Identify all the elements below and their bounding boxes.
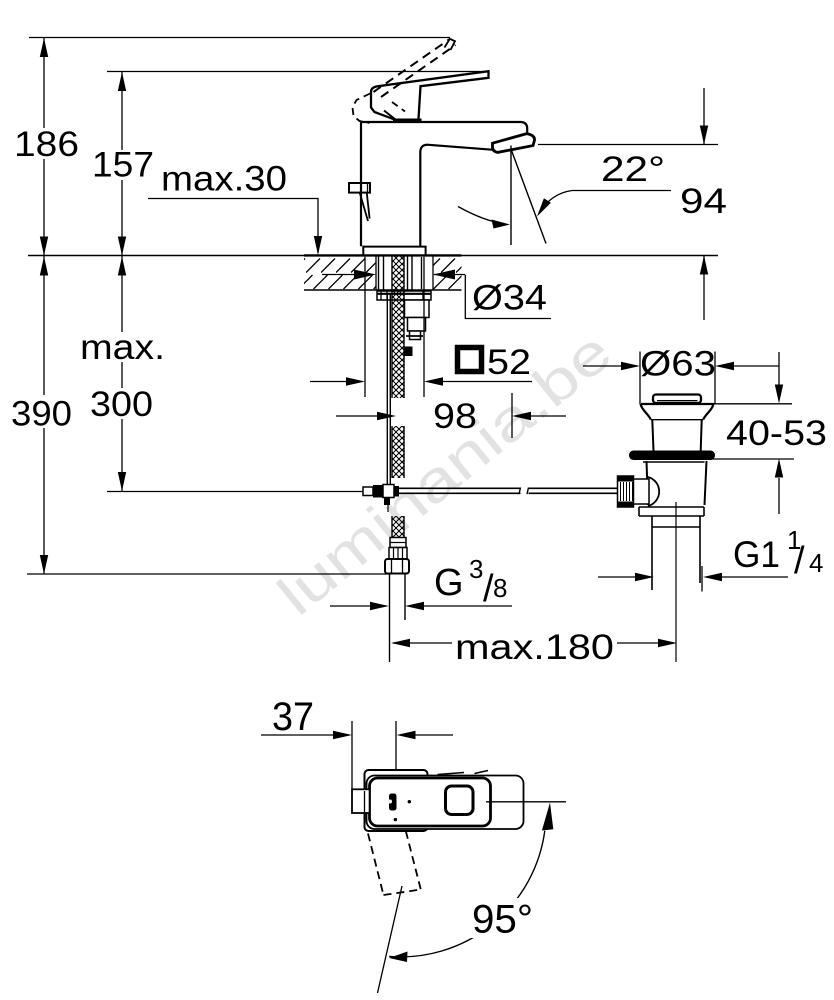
svg-text:157: 157 [92,146,154,185]
svg-text:max.: max. [80,328,165,367]
svg-text:G1: G1 [733,534,780,575]
svg-text:Ø34: Ø34 [472,279,547,318]
svg-text:98: 98 [433,397,477,436]
svg-text:37: 37 [272,695,314,739]
svg-text:max.30: max.30 [161,160,287,199]
svg-text:/: / [794,540,805,582]
svg-text:300: 300 [90,385,153,424]
svg-text:95°: 95° [472,898,533,942]
svg-text:3: 3 [469,554,483,584]
svg-text:186: 186 [14,125,79,164]
svg-text:52: 52 [487,343,531,382]
svg-text:390: 390 [11,395,72,434]
svg-text:G: G [434,562,464,604]
svg-text:max.180: max.180 [455,628,614,667]
svg-text:4: 4 [809,548,823,578]
svg-text:94: 94 [680,182,727,221]
svg-text:Ø63: Ø63 [640,345,716,384]
svg-text:8: 8 [493,573,507,603]
svg-text:40-53: 40-53 [726,414,827,453]
svg-text:22°: 22° [601,150,665,189]
